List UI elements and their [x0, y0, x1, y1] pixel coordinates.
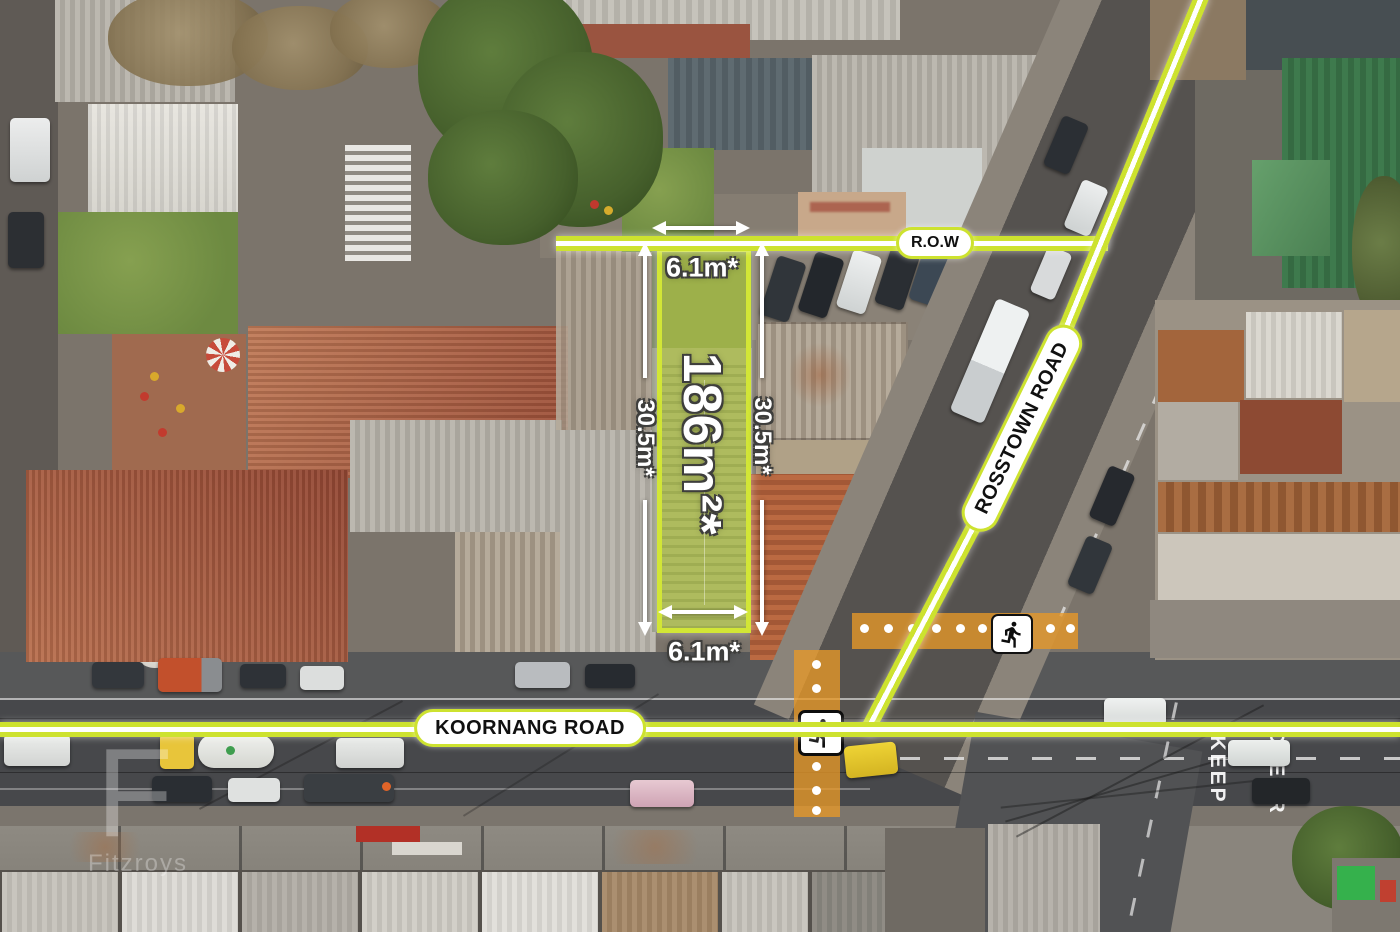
shop-roof	[2, 872, 118, 932]
depth-label-left: 30.5m*	[631, 399, 659, 476]
gray-shop-roof	[1158, 402, 1238, 480]
red-shop-sign-small	[1380, 880, 1396, 902]
watermark-name: Fitzroys	[88, 850, 188, 878]
pink-car	[630, 780, 694, 807]
brick-shop-roof	[1240, 400, 1342, 474]
yellow-chair	[176, 404, 185, 413]
depth-label-right: 30.5m*	[748, 397, 776, 474]
aerial-photo: KEEP CLEAR	[0, 0, 1400, 932]
light-strip-roof	[1158, 534, 1400, 600]
watermark-logo-f: F	[96, 730, 173, 856]
row-road-pill: R.O.W	[896, 227, 974, 259]
crossing-dot	[978, 624, 987, 633]
white-shop-sign	[392, 842, 462, 855]
slate-roof	[668, 58, 818, 150]
pergola-slats	[345, 145, 411, 261]
red-bin	[590, 200, 599, 209]
koornang-road-pill: KOORNANG ROAD	[414, 709, 646, 747]
crossing-dot	[812, 684, 821, 693]
yellow-bin	[604, 206, 613, 215]
depth-line-right-upper	[760, 254, 764, 378]
shop-roof	[602, 872, 718, 932]
car	[515, 662, 570, 688]
frontage-label-bottom: 6.1m*	[668, 637, 740, 668]
umbrella	[206, 338, 240, 372]
crossing-dot	[932, 624, 941, 633]
road-marking-keep: KEEP	[1205, 735, 1229, 804]
shop-roof	[362, 872, 478, 932]
car	[300, 666, 344, 690]
white-shop-roof	[1246, 312, 1342, 398]
yellow-chair	[150, 372, 159, 381]
site-area-label: 186m²*	[671, 352, 733, 535]
arrowhead-down	[755, 622, 769, 636]
car	[1228, 740, 1290, 766]
shop-roof	[722, 872, 808, 932]
tram-rail	[0, 718, 1400, 719]
white-van	[4, 734, 70, 766]
rust-strip-roof	[1158, 482, 1400, 532]
koornang-line	[0, 722, 1400, 737]
red-chair	[158, 428, 167, 437]
arrowhead-left	[652, 221, 666, 235]
arrowhead-down	[638, 622, 652, 636]
crossing-dot	[860, 624, 869, 633]
arrowhead-left	[658, 605, 672, 619]
faded-sign-wall	[798, 192, 906, 236]
shop-roof	[122, 872, 238, 932]
shop-roof	[482, 872, 598, 932]
depth-line-left-upper	[643, 254, 647, 378]
width-arrow-top	[666, 226, 736, 230]
east-sidewalk	[1150, 600, 1400, 658]
lawn	[58, 212, 238, 334]
depth-line-right-lower	[760, 500, 764, 624]
arrowhead-right	[736, 221, 750, 235]
crossing-dot	[812, 762, 821, 771]
green-hip-roof	[1252, 160, 1330, 256]
flatbed-truck	[304, 774, 394, 802]
row-road-label: R.O.W	[911, 234, 959, 252]
car	[8, 212, 44, 268]
frontage-label-top: 6.1m*	[666, 253, 738, 284]
crossing-dot	[812, 806, 821, 815]
shop-roof-east	[988, 824, 1100, 932]
drum-logo	[226, 746, 235, 755]
tiled-roof	[26, 470, 348, 662]
shop-roof-east	[885, 828, 985, 932]
crossing-dot	[812, 786, 821, 795]
tan-shop-roof	[1344, 310, 1400, 402]
cement-drum	[198, 734, 274, 768]
rusty-roof	[455, 532, 565, 652]
tram-rail	[0, 772, 1400, 773]
white-van	[336, 738, 404, 768]
road-line	[0, 698, 1400, 700]
arrowhead-up	[638, 242, 652, 256]
depth-line-left-lower	[643, 500, 647, 624]
road-dashes	[900, 757, 1400, 760]
car	[240, 664, 286, 688]
rust-patch	[600, 830, 710, 864]
yellow-taxi	[843, 741, 898, 778]
arrowhead-right	[734, 605, 748, 619]
crossing-dot	[1046, 624, 1055, 633]
metal-roof	[350, 420, 562, 532]
shop-roofs-row	[0, 870, 900, 932]
shop-roof	[242, 872, 358, 932]
rust-stain	[790, 340, 850, 410]
crossing-dot	[956, 624, 965, 633]
crossing-dot	[812, 660, 821, 669]
crossing-dot	[884, 624, 893, 633]
rust-shop-roof	[1158, 330, 1244, 402]
arrowhead-up	[755, 242, 769, 256]
koornang-road-label: KOORNANG ROAD	[435, 717, 625, 740]
car	[1252, 778, 1310, 804]
width-arrow-bottom	[670, 610, 736, 614]
marquee-roof	[88, 104, 238, 212]
car	[585, 664, 635, 688]
car	[92, 662, 144, 688]
faded-sign	[810, 202, 890, 212]
traffic-cone	[382, 782, 391, 791]
tree	[428, 110, 578, 245]
orange-truck	[158, 658, 222, 692]
car	[10, 118, 50, 182]
pedestrian-icon	[991, 614, 1033, 654]
crossing-dot	[1066, 624, 1075, 633]
car	[228, 778, 280, 802]
green-shop-sign	[1337, 866, 1375, 900]
red-chair	[140, 392, 149, 401]
red-shop-sign	[356, 826, 420, 842]
